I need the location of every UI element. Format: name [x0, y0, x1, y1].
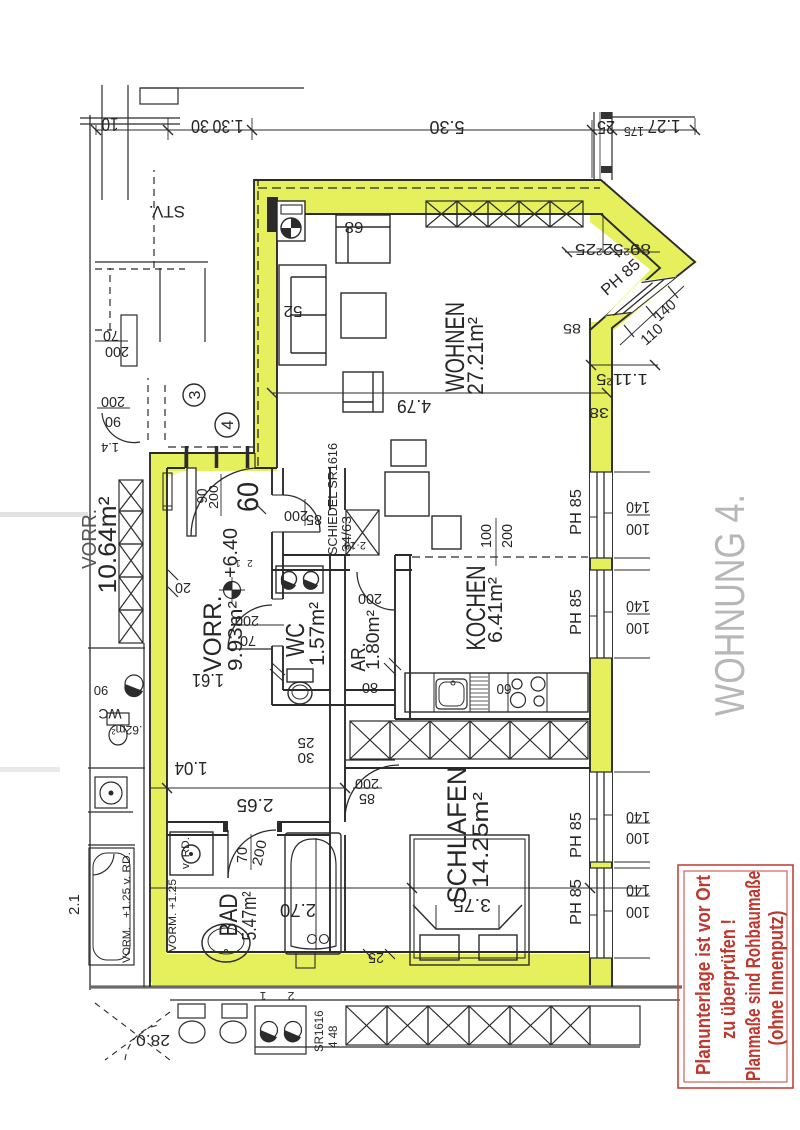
svg-text:6.41m²: 6.41m²	[485, 577, 507, 643]
svg-text:1.61: 1.61	[192, 670, 224, 690]
svg-text:89²52²25: 89²52²25	[575, 240, 651, 257]
svg-text:80: 80	[362, 679, 378, 696]
svg-text:zu überprüfen !: zu überprüfen !	[718, 919, 740, 1039]
svg-text:1.57m²: 1.57m²	[306, 602, 329, 666]
svg-text:2.1: 2.1	[66, 894, 83, 915]
svg-text:1.4: 1.4	[101, 440, 119, 455]
svg-text:1: 1	[259, 989, 266, 1003]
svg-text:140: 140	[626, 498, 650, 515]
svg-text:2: 2	[247, 557, 253, 568]
svg-text:WC: WC	[98, 706, 121, 722]
svg-text:200: 200	[358, 590, 382, 607]
svg-text:VORM. +1.25: VORM. +1.25	[167, 879, 179, 952]
svg-text:200: 200	[105, 343, 129, 360]
svg-text:100: 100	[626, 829, 650, 846]
svg-text:WOHNUNG 4.: WOHNUNG 4.	[706, 494, 753, 716]
svg-text:2.70: 2.70	[280, 900, 316, 920]
svg-text:140: 140	[626, 881, 650, 898]
svg-text:PH 85: PH 85	[568, 489, 585, 535]
svg-text:1.27: 1.27	[648, 116, 681, 136]
svg-text:175: 175	[624, 124, 644, 139]
svg-text:1.11²5: 1.11²5	[596, 370, 648, 387]
svg-text:60: 60	[497, 680, 512, 697]
svg-text:140: 140	[626, 597, 650, 614]
svg-text:200: 200	[355, 775, 379, 792]
svg-text:70: 70	[240, 632, 256, 649]
svg-text:VORM.: VORM.	[121, 927, 133, 963]
svg-text:STV.: STV.	[149, 202, 185, 221]
svg-text:+6.40: +6.40	[220, 528, 242, 578]
svg-text:68: 68	[344, 218, 363, 235]
svg-text:v. RD.: v. RD.	[180, 837, 192, 869]
svg-text:90: 90	[105, 413, 121, 430]
svg-text:27.21m²: 27.21m²	[463, 317, 488, 395]
svg-text:.62m²: .62m²	[112, 723, 143, 737]
svg-text:30: 30	[298, 749, 315, 766]
svg-text:85: 85	[306, 511, 322, 528]
svg-text:28.0: 28.0	[136, 1031, 170, 1048]
svg-text:52: 52	[283, 302, 302, 319]
svg-text:90: 90	[94, 683, 108, 698]
svg-text:20: 20	[175, 579, 191, 596]
svg-text:140: 140	[626, 808, 650, 825]
svg-text:4.79: 4.79	[397, 396, 431, 416]
svg-text:85: 85	[359, 790, 375, 807]
svg-text:PH 85: PH 85	[568, 879, 585, 925]
svg-text:5.30: 5.30	[430, 117, 465, 137]
svg-text:200: 200	[235, 612, 259, 629]
svg-text:+1.25 v. RD.: +1.25 v. RD.	[121, 852, 133, 918]
svg-text:10: 10	[102, 114, 119, 134]
svg-text:200: 200	[206, 485, 221, 509]
svg-text:1.80m²: 1.80m²	[363, 610, 383, 670]
svg-text:70: 70	[103, 327, 119, 344]
svg-text:85: 85	[563, 321, 581, 337]
svg-text:60: 60	[232, 482, 265, 512]
svg-text:100: 100	[478, 524, 495, 548]
svg-text:30: 30	[191, 116, 209, 136]
svg-text:100: 100	[626, 903, 650, 920]
svg-text:200: 200	[499, 524, 516, 548]
svg-text:2.65: 2.65	[237, 795, 274, 815]
svg-text:100: 100	[626, 619, 650, 636]
svg-text:200: 200	[101, 393, 125, 410]
svg-text:Planmaße sind Rohbaumaße: Planmaße sind Rohbaumaße	[743, 871, 765, 1081]
svg-text:25: 25	[597, 117, 615, 137]
svg-text:25: 25	[298, 734, 315, 751]
svg-text:38: 38	[589, 404, 609, 421]
svg-text:PH 85: PH 85	[568, 812, 585, 858]
svg-text:100: 100	[626, 520, 650, 537]
svg-text:VORR.: VORR.	[79, 509, 101, 569]
svg-text:1.04: 1.04	[175, 758, 208, 778]
svg-text:1: 1	[235, 557, 241, 568]
svg-text:3.75: 3.75	[453, 895, 491, 915]
svg-text:PH 85: PH 85	[568, 589, 585, 635]
svg-text:5.47m²: 5.47m²	[239, 891, 261, 940]
svg-text:Planunterlage ist vor Ort: Planunterlage ist vor Ort	[693, 875, 715, 1075]
svg-text:3: 3	[187, 390, 204, 399]
svg-text:14.25m²: 14.25m²	[468, 792, 493, 888]
svg-text:25: 25	[368, 949, 384, 966]
svg-text:VORR.: VORR.	[199, 596, 227, 673]
svg-text:(ohne Innenputz): (ohne Innenputz)	[766, 911, 788, 1046]
svg-text:4 48: 4 48	[328, 1026, 340, 1048]
svg-text:2: 2	[287, 989, 294, 1003]
svg-text:SR1616: SR1616	[314, 1010, 326, 1052]
svg-text:200: 200	[284, 507, 308, 524]
svg-text:2·18: 2·18	[344, 539, 366, 551]
svg-text:1.30: 1.30	[213, 116, 244, 136]
svg-text:4: 4	[218, 420, 237, 429]
svg-text:SCHIEDEL SR1616: SCHIEDEL SR1616	[325, 443, 340, 555]
